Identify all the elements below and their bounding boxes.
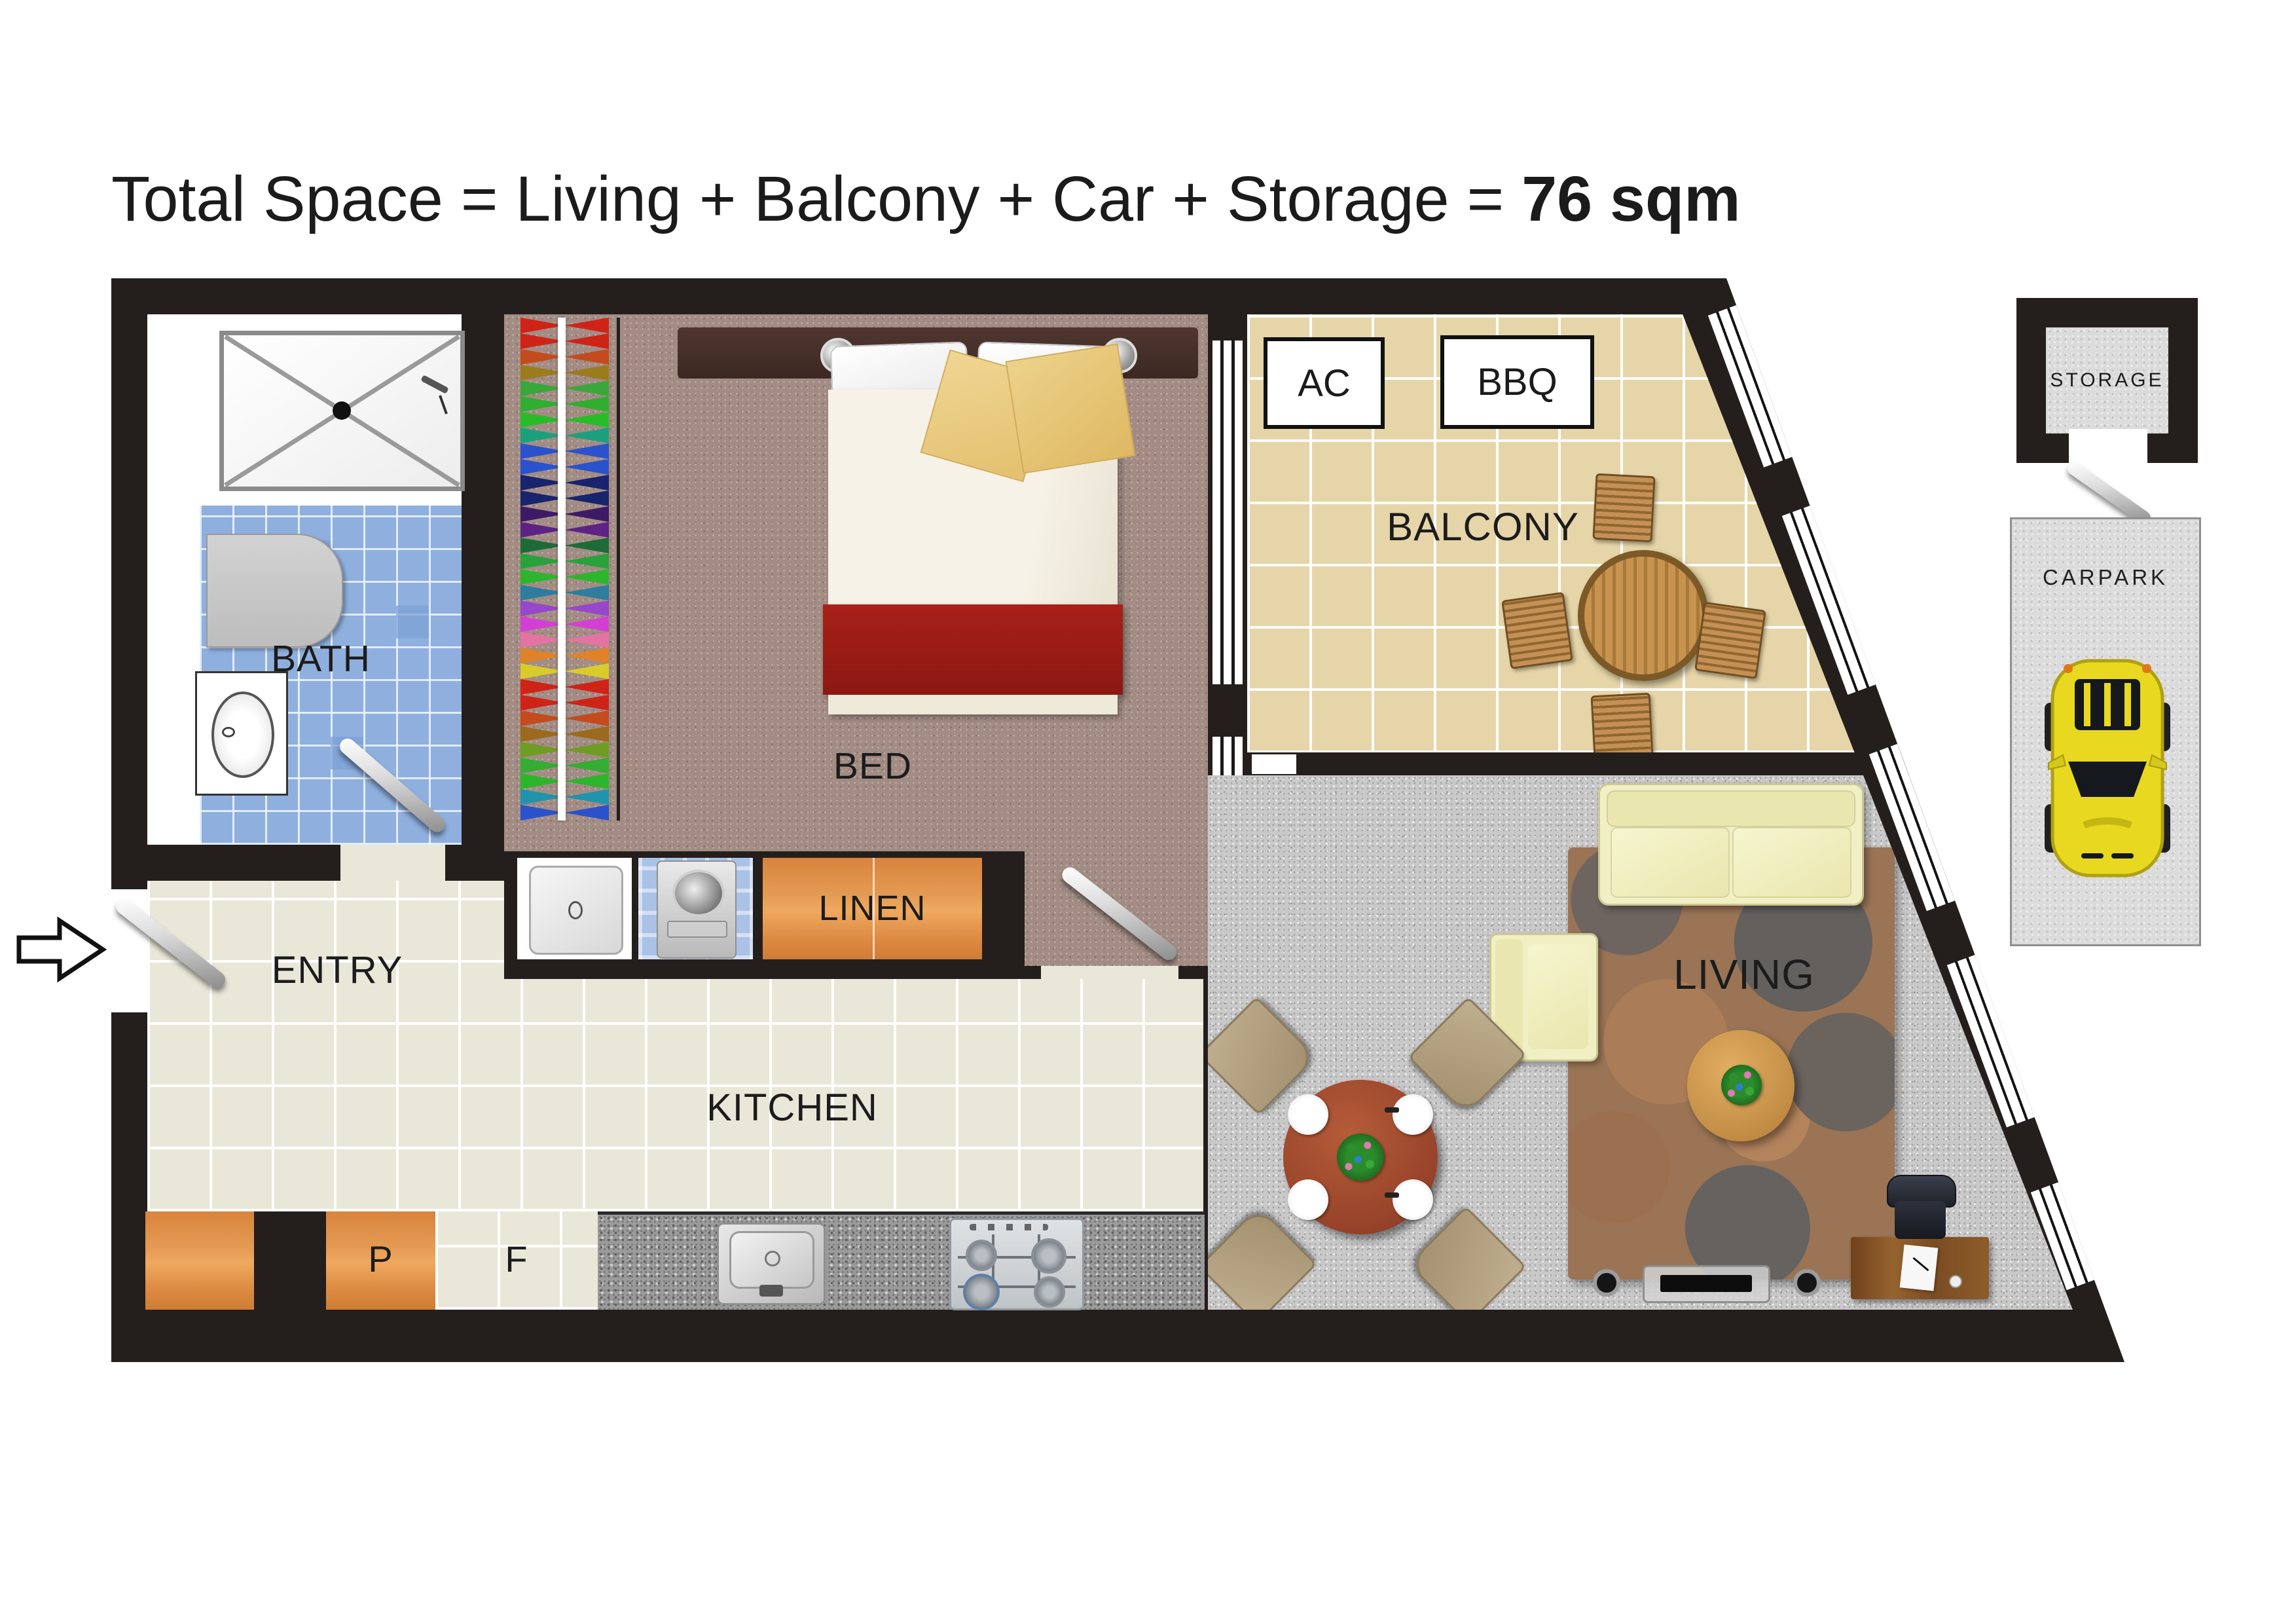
toilet-seat: [211, 692, 274, 778]
title-total-area: 76 sqm: [1522, 163, 1740, 234]
pantry-cabinet: P: [326, 1211, 435, 1310]
kitchen-sink: [717, 1223, 826, 1305]
clothes-item: [564, 349, 609, 365]
clothes-item: [564, 616, 609, 632]
outdoor-chair: [1501, 592, 1573, 669]
laundry-tub: [517, 858, 632, 959]
clothes-item: [564, 758, 609, 773]
tv-unit: [1643, 1265, 1770, 1303]
table-flowers: [1337, 1134, 1384, 1181]
clothes-item: [564, 412, 609, 428]
bath-door-opening: [340, 845, 445, 882]
clothes-item: [564, 742, 609, 758]
clothes-item: [564, 585, 609, 600]
clothes-item: [564, 569, 609, 585]
cup-handle: [1385, 1192, 1399, 1198]
toilet-flush-button: [222, 727, 235, 737]
place-setting: [1288, 1094, 1328, 1135]
balcony: AC BBQ BALCONY: [1247, 314, 1856, 753]
clothes-item: [564, 632, 609, 648]
label-ac: AC: [1298, 361, 1351, 405]
bed-foot-board: [828, 695, 1118, 714]
toilet: [195, 671, 288, 796]
clothes-item: [564, 333, 609, 349]
ac-unit-box: AC: [1264, 337, 1385, 429]
clothes-item: [564, 506, 609, 522]
fridge-space: F: [435, 1211, 598, 1310]
sofa: [1598, 783, 1864, 906]
clothes-item: [564, 365, 609, 380]
place-setting: [1393, 1179, 1433, 1220]
balcony-wall-opening: [1252, 754, 1296, 774]
kitchen-bench: [598, 1211, 1205, 1310]
apartment-outline: BATH BED: [111, 278, 2124, 1362]
label-pantry: P: [326, 1238, 435, 1280]
washing-machine: [638, 858, 753, 959]
desk-paper: [1900, 1244, 1939, 1291]
clothes-item: [564, 663, 609, 679]
clothes-item: [564, 428, 609, 443]
sink-drain: [765, 1251, 780, 1266]
clothes-item: [564, 538, 609, 553]
storage-room: STORAGE: [2016, 298, 2198, 463]
clothes-item: [564, 475, 609, 490]
wardrobe-divider-line: [617, 318, 620, 821]
room-label-bath: BATH: [242, 637, 399, 680]
label-storage: STORAGE: [2050, 369, 2164, 392]
place-setting: [1393, 1094, 1433, 1135]
sofa-cushion: [1611, 827, 1730, 898]
bedroom-balcony-sliding-door: [1212, 341, 1243, 684]
clothes-item: [564, 679, 609, 695]
clothes-item: [564, 710, 609, 726]
dining-chair: [1408, 1206, 1527, 1325]
bbq-box: BBQ: [1440, 335, 1594, 429]
bath-dark-tile: [396, 606, 429, 638]
laundry-nook: LINEN: [504, 851, 1025, 966]
burner: [963, 1274, 1000, 1310]
sink-tap: [759, 1285, 783, 1297]
carpark: CARPARK: [2010, 517, 2201, 946]
tv-screen: [1660, 1275, 1752, 1292]
clothes-item: [564, 553, 609, 569]
bed-runner: [823, 604, 1123, 695]
office-chair: [1887, 1175, 1954, 1240]
bathroom-vanity: [206, 534, 343, 648]
room-label-entry: ENTRY: [262, 948, 412, 992]
gas-cooktop: [949, 1218, 1084, 1310]
clothes-item: [564, 805, 609, 821]
clothes-item: [564, 600, 609, 616]
label-bbq: BBQ: [1477, 360, 1558, 404]
clothes-item: [564, 773, 609, 789]
sofa-backrest: [1607, 790, 1855, 827]
balcony-bottom-wall: [1247, 752, 1912, 776]
speaker: [1793, 1269, 1821, 1297]
shower-tray: [219, 331, 465, 491]
room-label-living: LIVING: [1636, 950, 1852, 999]
kitchen-cabinet: [145, 1211, 254, 1310]
storage-door-handle: [2065, 460, 2153, 526]
clothes-item: [564, 726, 609, 742]
storage-door-opening: [2069, 429, 2147, 463]
desk-mug: [1949, 1275, 1962, 1288]
clothes-item: [564, 648, 609, 663]
outdoor-chair: [1694, 602, 1766, 679]
clothes-item: [564, 695, 609, 710]
room-label-kitchen: KITCHEN: [665, 1086, 920, 1130]
wardrobe-rail: [558, 318, 566, 821]
place-setting: [1288, 1179, 1328, 1220]
label-linen: LINEN: [763, 888, 982, 929]
label-carpark: CARPARK: [2012, 565, 2199, 590]
cooktop-knobs: [970, 1224, 1048, 1230]
desk: [1851, 1237, 1989, 1299]
burner: [1031, 1238, 1066, 1274]
linen-cupboard: LINEN: [763, 858, 982, 959]
room-label-balcony: BALCONY: [1332, 504, 1633, 549]
sofa-cushion: [1732, 827, 1851, 898]
cup-handle: [1385, 1107, 1399, 1113]
clothes-item: [564, 490, 609, 506]
office-chair-seat: [1895, 1201, 1946, 1239]
coffee-table-plant: [1721, 1065, 1762, 1105]
speaker: [1593, 1269, 1620, 1297]
armchair-cushion: [1528, 944, 1588, 1049]
car-icon: [2043, 657, 2172, 879]
outdoor-chair: [1591, 693, 1654, 759]
washing-machine-drum: [672, 870, 725, 917]
clothes-item: [564, 443, 609, 459]
entry-arrow-icon: [16, 915, 108, 984]
washing-machine-panel: [667, 921, 727, 938]
burner: [966, 1240, 997, 1271]
living-room: LIVING: [1208, 775, 2079, 1310]
dining-chair: [1198, 1206, 1317, 1325]
label-fridge: F: [435, 1238, 598, 1280]
shower-head-icon: [420, 375, 449, 414]
clothes-item: [564, 789, 609, 805]
clothes-item: [564, 396, 609, 412]
clothes-item: [564, 380, 609, 396]
floor-plan: Total Space = Living + Balcony + Car + S…: [0, 0, 2296, 1624]
clothes-item: [564, 318, 609, 333]
page-title: Total Space = Living + Balcony + Car + S…: [111, 162, 1740, 236]
clothes-item: [564, 459, 609, 475]
outdoor-table: [1578, 550, 1709, 681]
bed-cushion: [1005, 343, 1135, 473]
washing-machine-body: [657, 860, 737, 959]
laundry-tub-drain: [568, 901, 583, 919]
burner: [1034, 1276, 1065, 1308]
title-text: Total Space = Living + Balcony + Car + S…: [111, 163, 1522, 234]
clothes-item: [564, 522, 609, 538]
room-label-bed: BED: [804, 745, 941, 788]
outdoor-chair: [1592, 473, 1655, 543]
